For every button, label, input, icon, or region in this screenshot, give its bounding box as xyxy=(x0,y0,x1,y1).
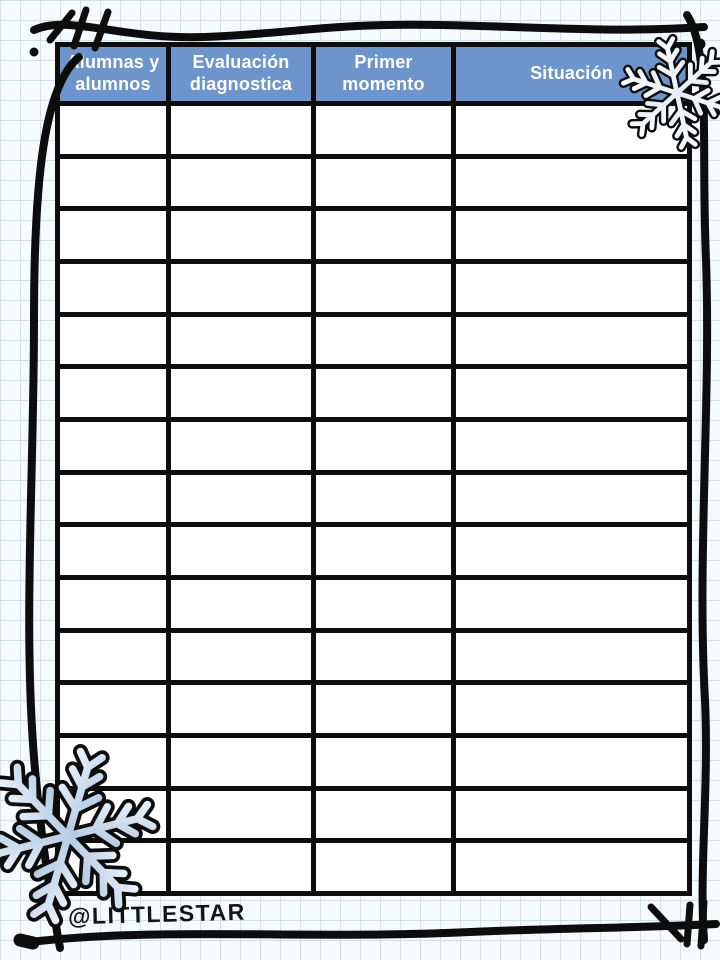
table-cell xyxy=(60,422,166,470)
table-cell xyxy=(316,211,451,259)
table-cell xyxy=(456,106,687,154)
table-cell xyxy=(316,106,451,154)
table-cell xyxy=(316,264,451,312)
column-header-evaluacion: Evaluación diagnostica xyxy=(171,47,311,101)
table-cell xyxy=(60,685,166,733)
table-cell xyxy=(316,685,451,733)
table-cell xyxy=(171,527,311,575)
table-cell xyxy=(60,475,166,523)
column-header-primer-momento: Primer momento xyxy=(316,47,451,101)
table-cell xyxy=(456,738,687,786)
table-cell xyxy=(60,791,166,839)
table-cell xyxy=(60,633,166,681)
table-cell xyxy=(456,159,687,207)
table-cell xyxy=(316,159,451,207)
table-cell xyxy=(456,527,687,575)
credit-handle: @LITTLESTAR xyxy=(68,899,246,931)
table-cell xyxy=(171,264,311,312)
table-cell xyxy=(171,211,311,259)
table-cell xyxy=(456,317,687,365)
table-cell xyxy=(456,475,687,523)
table-cell xyxy=(171,369,311,417)
table-cell xyxy=(171,475,311,523)
table-cell xyxy=(60,264,166,312)
table-cell xyxy=(171,580,311,628)
table-cell xyxy=(171,633,311,681)
table-cell xyxy=(456,264,687,312)
column-header-situacion: Situación xyxy=(456,47,687,101)
table-cell xyxy=(171,106,311,154)
worksheet-page: { "table": { "columns": [ {"label": "Alu… xyxy=(0,0,720,960)
table-cell xyxy=(60,738,166,786)
credit-bullet-dot xyxy=(49,909,57,917)
table-cell xyxy=(456,211,687,259)
table-cell xyxy=(60,580,166,628)
table-cell xyxy=(456,843,687,891)
table-cell xyxy=(60,527,166,575)
table-cell xyxy=(316,843,451,891)
table-cell xyxy=(316,317,451,365)
table-cell xyxy=(316,633,451,681)
table-cell xyxy=(60,369,166,417)
table-cell xyxy=(456,369,687,417)
table-cell xyxy=(60,211,166,259)
table-cell xyxy=(316,527,451,575)
table-cell xyxy=(456,580,687,628)
table-cell xyxy=(456,685,687,733)
table-cell xyxy=(316,738,451,786)
table-cell xyxy=(316,475,451,523)
table-cell xyxy=(456,633,687,681)
ink-dot-top-left xyxy=(30,48,39,57)
table-cell xyxy=(171,422,311,470)
table-cell xyxy=(171,317,311,365)
tracking-table: Alumnas y alumnos Evaluación diagnostica… xyxy=(55,42,692,896)
table-cell xyxy=(171,843,311,891)
table-cell xyxy=(316,791,451,839)
table-cell xyxy=(316,422,451,470)
table-cell xyxy=(456,791,687,839)
table-cell xyxy=(316,369,451,417)
ink-dot-top-right xyxy=(695,39,706,50)
table-cell xyxy=(171,685,311,733)
table-cell xyxy=(171,738,311,786)
table-cell xyxy=(171,791,311,839)
table-cell xyxy=(60,159,166,207)
table-cell xyxy=(60,106,166,154)
table-cell xyxy=(316,580,451,628)
column-header-alumnas: Alumnas y alumnos xyxy=(60,47,166,101)
table-cell xyxy=(60,317,166,365)
table-cell xyxy=(60,843,166,891)
table-cell xyxy=(171,159,311,207)
table-cell xyxy=(456,422,687,470)
